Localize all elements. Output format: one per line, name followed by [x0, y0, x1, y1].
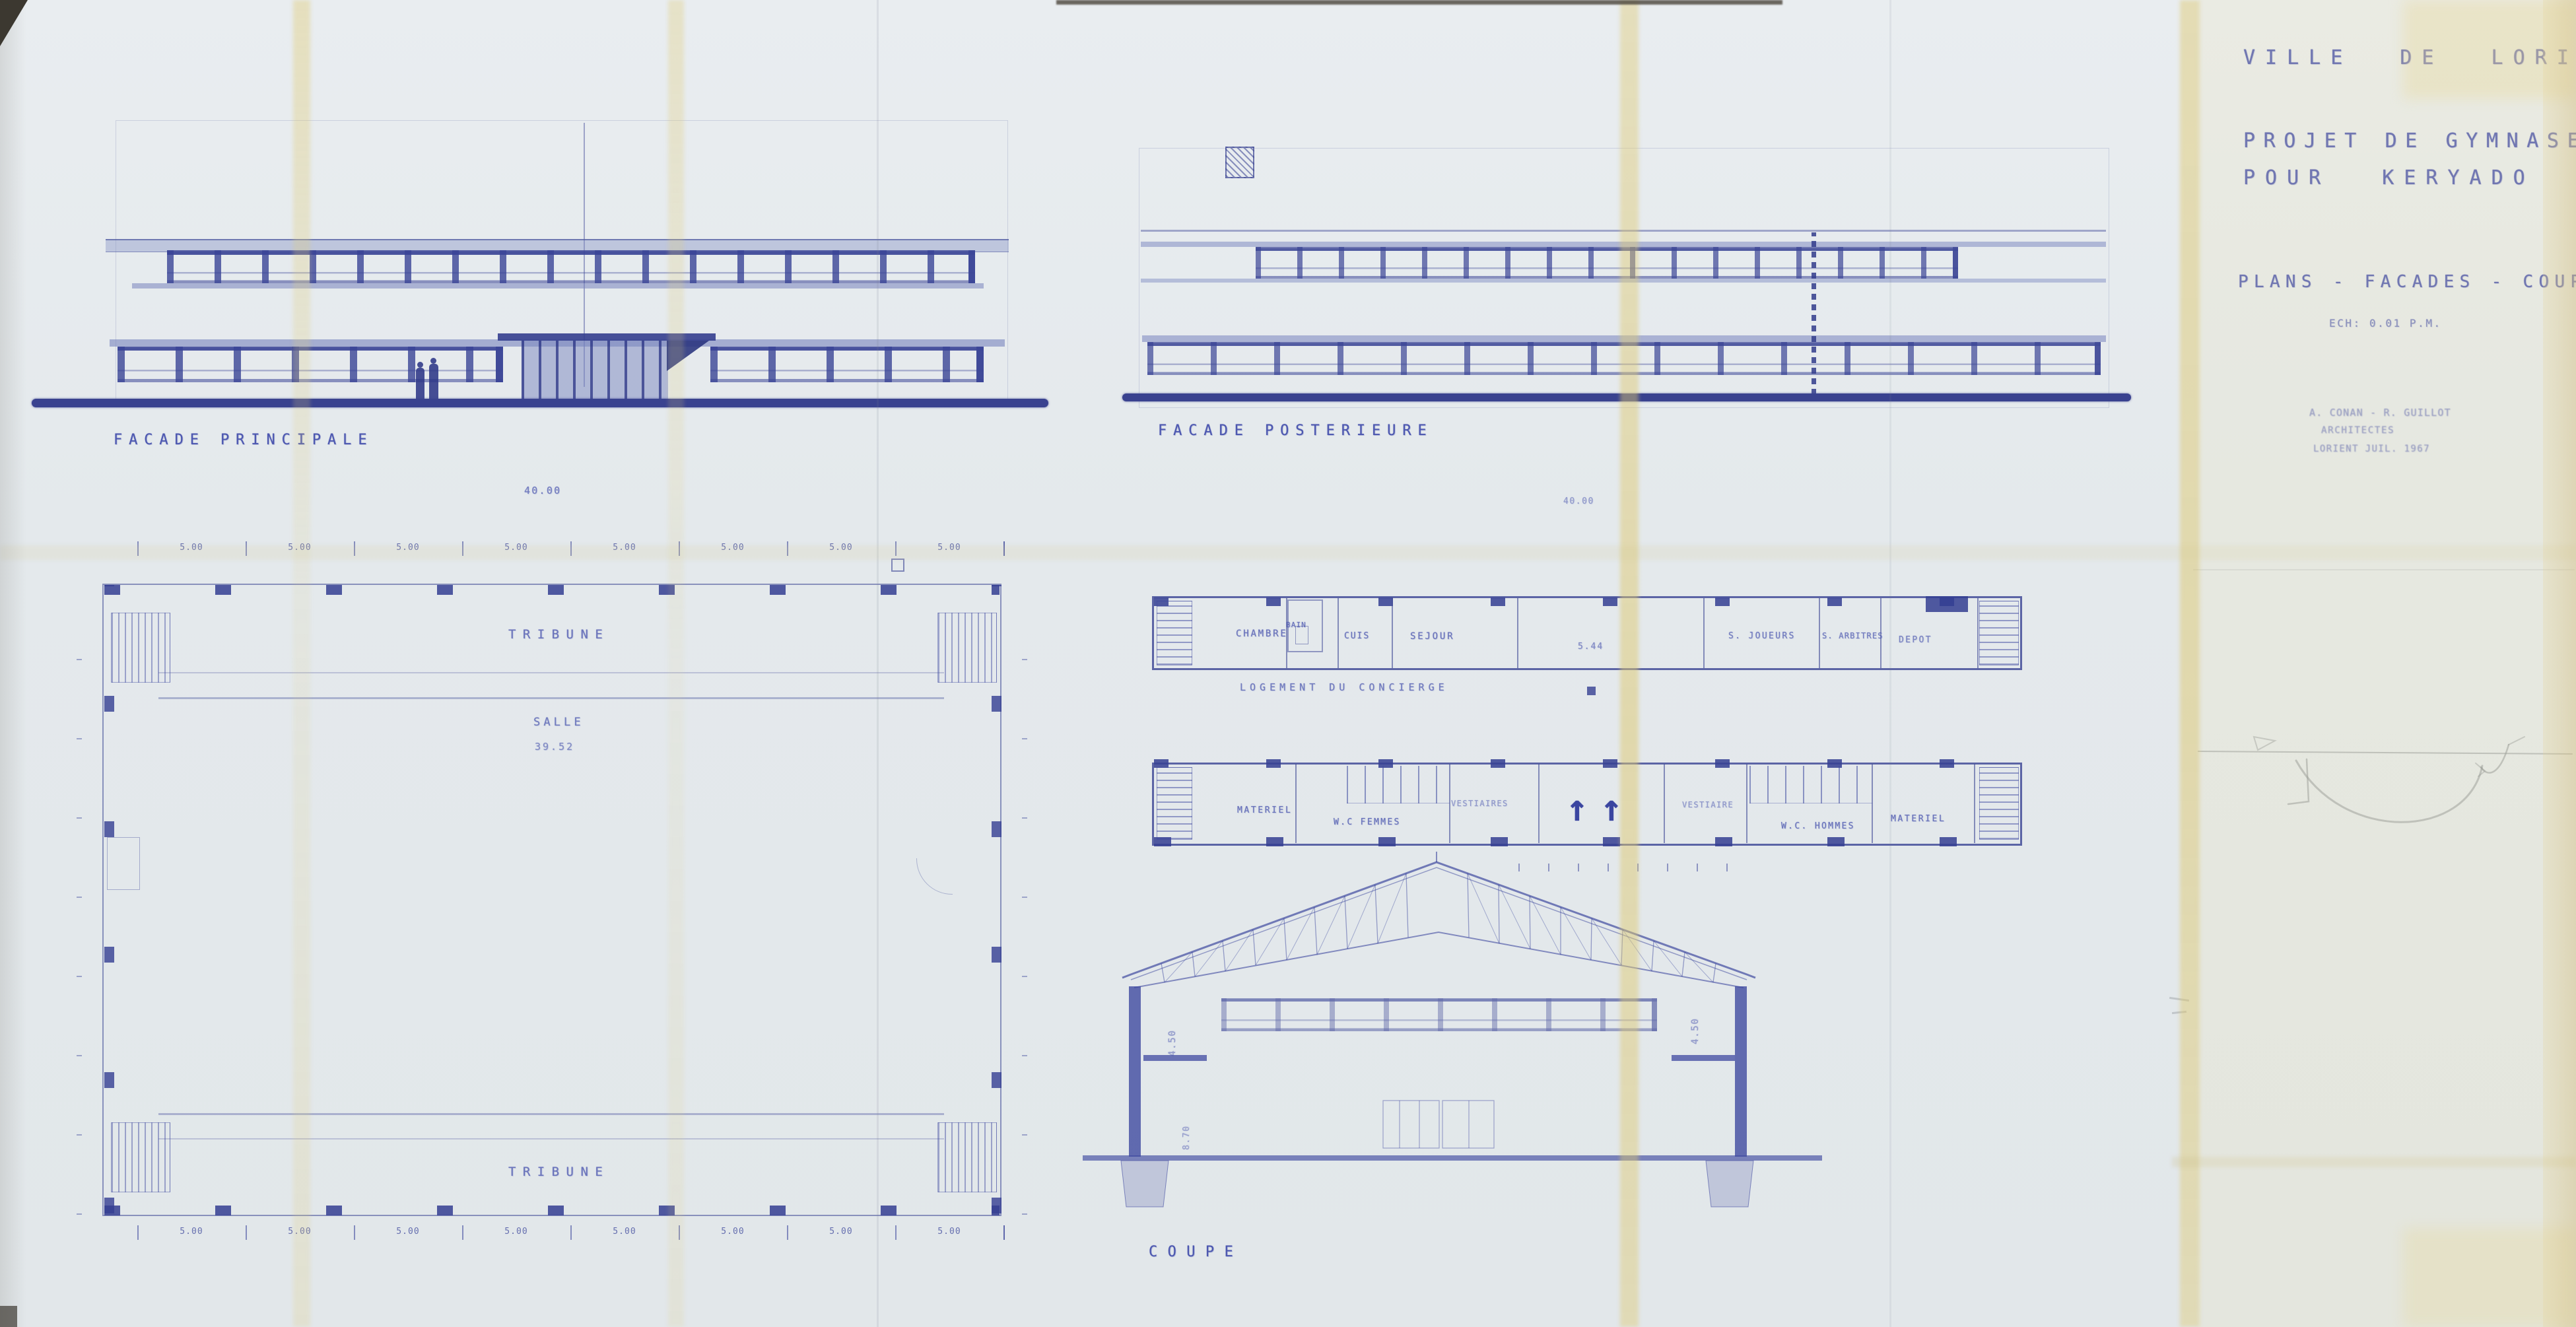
bay-dimension: 5.00	[137, 541, 246, 556]
logement-concierge-label: LOGEMENT DU CONCIERGE	[1240, 681, 1448, 693]
roof-vent	[1225, 147, 1254, 178]
bay-dimension: 5.00	[679, 541, 787, 556]
section-window-band	[1221, 998, 1657, 1031]
bay-dimension: 5.00	[787, 541, 895, 556]
room-label-joueurs: S. JOUEURS	[1728, 631, 1796, 641]
parapet-line	[1141, 230, 2106, 232]
tribune-edge	[158, 697, 944, 699]
solid-wall-block	[1926, 596, 1968, 612]
architect-line1: A. CONAN - R. GUILLOT	[2309, 407, 2451, 419]
partition-wall	[1703, 598, 1705, 668]
bay-dimension: 5.00	[246, 541, 354, 556]
section-dim-right: 4.50	[1690, 1018, 1701, 1044]
bay-dimension: 5.00	[462, 1225, 570, 1240]
tribune-bottom-label: TRIBUNE	[508, 1165, 609, 1179]
partition-wall	[1538, 764, 1540, 843]
pencil-mark	[2169, 997, 2189, 1002]
wc-stalls	[1749, 766, 1872, 803]
dimension-ticks-left	[77, 594, 82, 1215]
stair-hatch	[1157, 767, 1192, 840]
project-title-line1: PROJET DE GYMNASE	[2243, 129, 2576, 153]
stair-hatch	[937, 613, 997, 683]
room-label-vestiaire: VESTIAIRE	[1682, 800, 1734, 809]
pencil-sketch	[2190, 667, 2576, 885]
roof-slab	[1141, 242, 2106, 247]
salle-label: SALLE	[533, 716, 584, 729]
scan-edge	[0, 0, 28, 46]
room-label-sejour: SEJOUR	[1410, 631, 1454, 642]
edge-shadow	[0, 0, 26, 1327]
coupe-truss	[1083, 845, 1835, 1221]
facade-posterieure-dim: 40.00	[1563, 496, 1594, 506]
blueprint-sheet: FACADE PRINCIPALE 40.00 FACADE POSTERIEU…	[0, 0, 2576, 1327]
room-label-cuis: CUIS	[1344, 631, 1370, 641]
architect-line3: LORIENT JUIL. 1967	[2313, 444, 2430, 454]
partition-wall	[1977, 598, 1979, 668]
ground-line	[32, 399, 1048, 407]
column-ticks-top	[104, 585, 1000, 595]
window-band-lower-right	[710, 347, 984, 382]
room-label-bain: BAIN	[1286, 621, 1306, 629]
entrance-canopy	[498, 333, 716, 341]
person-figure	[417, 362, 423, 368]
up-arrow-icon: ↑	[1600, 787, 1623, 830]
column-dot	[1587, 687, 1596, 695]
up-arrow-icon: ↑	[1566, 787, 1588, 830]
scan-edge	[1056, 0, 1782, 5]
stair-hatch	[1157, 601, 1192, 665]
floor-slab	[1142, 335, 2106, 342]
room-label-chambre: CHAMBRE	[1236, 629, 1288, 639]
dimension-row-bottom: 5.00 5.00 5.00 5.00 5.00 5.00 5.00 5.00	[137, 1225, 1005, 1240]
window-band-lower-left	[118, 347, 503, 382]
bay-dimension: 5.00	[137, 1225, 246, 1240]
sill-line	[1141, 279, 2106, 283]
partition-wall	[1295, 764, 1297, 843]
room-label-arbitres: S. ARBITRES	[1822, 631, 1883, 640]
dimension-ticks-right	[1022, 594, 1027, 1215]
bay-dimension: 5.00	[354, 1225, 462, 1240]
stair-hatch	[111, 1122, 170, 1192]
downpipe	[1812, 232, 1816, 395]
dimension-row-top: 5.00 5.00 5.00 5.00 5.00 5.00 5.00 5.00	[137, 541, 1005, 556]
column-ticks-top	[1154, 597, 2020, 606]
partition-wall	[1392, 598, 1393, 668]
pencil-line	[2193, 569, 2575, 570]
facade-posterieure-label: FACADE POSTERIEURE	[1158, 423, 1433, 439]
open-area-dim: 5.44	[1578, 642, 1604, 652]
bay-dimension: 5.00	[895, 1225, 1003, 1240]
room-label-wc-hommes: W.C. HOMMES	[1781, 821, 1855, 831]
hall-walls	[102, 584, 1001, 1216]
tribune-edge	[158, 1113, 944, 1115]
entrance-doors	[522, 341, 668, 400]
side-room	[107, 837, 140, 890]
stair-hatch	[111, 613, 170, 683]
bay-dimension: 5.00	[570, 1225, 679, 1240]
wc-stalls	[1347, 766, 1450, 803]
city-title: VILLE DE LORIENT	[2243, 46, 2576, 69]
bay-dimension: 5.00	[462, 541, 570, 556]
partition-wall	[1746, 764, 1747, 843]
pencil-mark	[2172, 1011, 2186, 1014]
window-band-upper	[1256, 247, 1958, 279]
tribune-edge	[158, 1138, 944, 1140]
partition-wall	[1664, 764, 1665, 843]
fold-stain	[2172, 1157, 2576, 1167]
partition-wall	[1338, 598, 1339, 668]
entrance-flag	[667, 341, 709, 371]
section-dim-height: 8.70	[1182, 1125, 1192, 1150]
stair-hatch	[1979, 767, 2019, 840]
sheet-title: PLANS - FACADES - COUPE	[2238, 272, 2576, 292]
tribune-edge	[158, 672, 944, 673]
person-figure	[429, 364, 438, 399]
project-title-line2: POUR KERYADO	[2243, 166, 2535, 189]
bay-dimension: 5.00	[787, 1225, 895, 1240]
bay-dimension: 5.00	[246, 1225, 354, 1240]
window-band-upper	[167, 250, 975, 283]
stair-hatch	[1979, 601, 2019, 665]
column-ticks-bottom	[104, 1206, 1000, 1215]
person-figure	[430, 358, 436, 364]
facade-principale-label: FACADE PRINCIPALE	[114, 432, 373, 448]
sill-line	[132, 283, 984, 289]
room-label-depot: DEPOT	[1899, 635, 1932, 645]
room-label-materiel-right: MATERIEL	[1891, 814, 1946, 824]
bay-dimension: 5.00	[895, 541, 1003, 556]
room-label-wc-femmes: W.C FEMMES	[1334, 817, 1401, 827]
column-detail	[891, 559, 904, 572]
room-label-vestiaires: VESTIAIRES	[1451, 799, 1508, 808]
salle-dim: 39.52	[535, 741, 574, 753]
bay-dimension: 5.00	[570, 541, 679, 556]
stair-hatch	[937, 1122, 997, 1192]
paper-aging	[2198, 0, 2576, 1327]
paper-aging	[2403, 1228, 2576, 1327]
bay-dimension: 5.00	[679, 1225, 787, 1240]
partition-wall	[1819, 598, 1820, 668]
paper-aging	[2543, 0, 2576, 1327]
partition-wall	[1974, 764, 1975, 843]
architect-line2: ARCHITECTES	[2321, 425, 2394, 436]
scan-edge	[0, 1306, 17, 1327]
scale-note: ECH: 0.01 P.M.	[2329, 317, 2442, 329]
bay-dimension: 5.00	[354, 541, 462, 556]
coupe-label: COUPE	[1149, 1244, 1243, 1260]
partition-wall	[1517, 598, 1518, 668]
window-band-lower	[1147, 342, 2101, 375]
section-dim-left: 4.50	[1167, 1030, 1178, 1056]
person-figure	[416, 368, 424, 399]
ground-line	[1122, 393, 2131, 401]
facade-principale-dim: 40.00	[524, 485, 561, 496]
tribune-top-label: TRIBUNE	[508, 627, 609, 642]
room-label-materiel-left: MATERIEL	[1237, 805, 1292, 815]
fold-stain	[2180, 0, 2200, 1327]
